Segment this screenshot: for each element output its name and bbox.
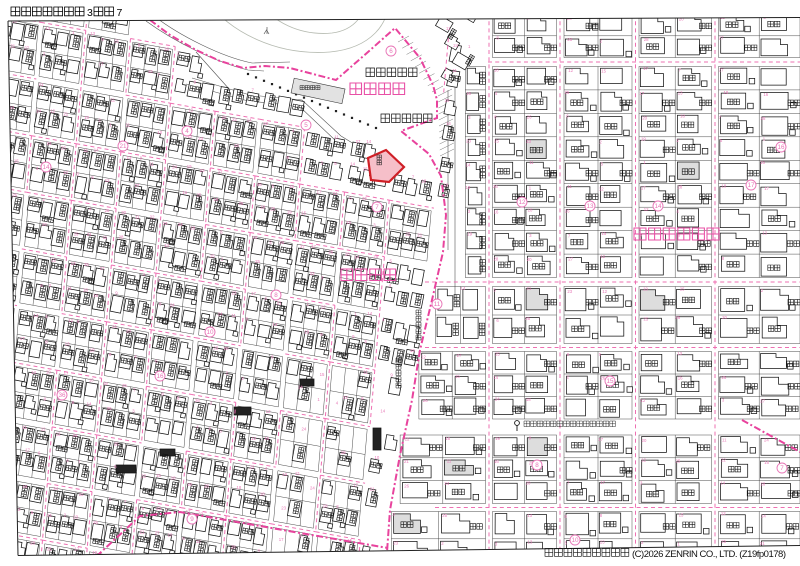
svg-text:27: 27 [356,139,361,144]
svg-text:17: 17 [747,182,755,189]
svg-text:18: 18 [465,185,470,190]
svg-text:21: 21 [47,513,52,518]
svg-text:6: 6 [389,48,393,55]
svg-text:25: 25 [197,192,202,197]
svg-text:25: 25 [84,262,89,267]
svg-text:21: 21 [39,82,44,87]
svg-text:26: 26 [362,196,367,201]
svg-text:17: 17 [764,186,769,191]
svg-text:14: 14 [654,203,662,210]
svg-text:26: 26 [525,316,530,321]
svg-text:12: 12 [105,178,110,183]
svg-text:27: 27 [760,398,765,403]
svg-text:25: 25 [494,139,499,144]
svg-text:27: 27 [568,256,573,261]
svg-text:11: 11 [22,425,27,430]
svg-text:18: 18 [237,485,242,490]
svg-text:3: 3 [87,7,93,19]
svg-text:14: 14 [380,409,385,414]
svg-text:11: 11 [363,370,368,375]
svg-text:16: 16 [494,459,499,464]
svg-text:15: 15 [455,374,460,379]
svg-text:23: 23 [250,465,255,470]
svg-text:13: 13 [71,261,76,266]
svg-text:24: 24 [302,426,307,431]
svg-text:15: 15 [210,254,215,259]
svg-text:28: 28 [231,545,236,550]
svg-text:26: 26 [722,375,727,380]
svg-text:18: 18 [494,68,499,73]
svg-text:28: 28 [119,235,124,240]
svg-text:10: 10 [84,115,89,120]
svg-text:17: 17 [311,244,316,249]
svg-text:28: 28 [644,37,649,42]
svg-text:17: 17 [598,437,603,442]
svg-text:27: 27 [155,531,160,536]
svg-text:17: 17 [25,448,30,453]
svg-text:15: 15 [606,378,614,385]
svg-text:24: 24 [53,486,58,491]
svg-text:15: 15 [14,159,19,164]
svg-text:15: 15 [679,513,684,518]
svg-text:7: 7 [375,204,379,211]
svg-text:23: 23 [600,539,605,544]
svg-text:25: 25 [676,459,681,464]
svg-text:24: 24 [310,485,315,490]
svg-text:13: 13 [127,155,132,160]
svg-text:19: 19 [187,164,192,169]
svg-text:28: 28 [105,208,110,213]
svg-text:27: 27 [719,67,724,72]
svg-text:8: 8 [274,292,278,299]
svg-text:11: 11 [722,437,727,442]
svg-text:24: 24 [178,222,183,227]
svg-text:11: 11 [149,161,154,166]
svg-text:4: 4 [185,128,189,135]
svg-text:21: 21 [277,301,282,306]
svg-text:22: 22 [141,474,146,479]
svg-text:17: 17 [317,189,322,194]
svg-text:26: 26 [114,441,119,446]
svg-text:16: 16 [93,293,98,298]
svg-text:25: 25 [122,383,127,388]
svg-text:22: 22 [222,115,227,120]
svg-text:28: 28 [761,116,766,121]
svg-text:18: 18 [680,113,685,118]
svg-text:21: 21 [114,39,119,44]
svg-text:19: 19 [410,348,415,353]
svg-text:13: 13 [677,351,682,356]
svg-text:26: 26 [164,47,169,52]
svg-text:16: 16 [466,91,471,96]
svg-text:21: 21 [760,541,765,546]
svg-text:21: 21 [370,486,375,491]
svg-text:21: 21 [119,143,127,150]
svg-text:14: 14 [354,254,359,259]
svg-text:11: 11 [434,301,441,308]
svg-text:14: 14 [273,322,278,327]
svg-text:14: 14 [164,243,169,248]
svg-text:14: 14 [94,148,99,153]
svg-text:15: 15 [320,372,325,377]
svg-text:14: 14 [466,163,471,168]
svg-text:24: 24 [495,397,500,402]
svg-text:24: 24 [444,481,449,486]
svg-text:13: 13 [45,26,50,31]
svg-text:10: 10 [528,208,533,213]
svg-text:13: 13 [188,107,193,112]
svg-text:23: 23 [281,506,286,511]
svg-text:18: 18 [171,475,176,480]
svg-text:10: 10 [46,370,51,375]
svg-text:21: 21 [10,44,15,49]
svg-text:11: 11 [447,458,452,463]
svg-text:19: 19 [214,197,219,202]
svg-text:16: 16 [760,160,765,165]
svg-text:20: 20 [121,210,126,215]
svg-text:15: 15 [264,436,269,441]
svg-text:19: 19 [287,210,292,215]
svg-text:21: 21 [140,530,145,535]
svg-text:19: 19 [724,90,729,95]
svg-text:15: 15 [602,231,607,236]
svg-text:14: 14 [234,143,239,148]
svg-text:12: 12 [68,318,73,323]
svg-text:25: 25 [680,286,685,291]
svg-text:23: 23 [200,168,205,173]
svg-text:25: 25 [495,351,500,356]
svg-text:18: 18 [260,204,265,209]
svg-text:12: 12 [568,68,573,73]
svg-text:24: 24 [47,141,52,146]
svg-text:24: 24 [170,303,175,308]
svg-text:21: 21 [63,111,68,116]
svg-text:19: 19 [304,329,309,334]
svg-text:11: 11 [126,122,131,127]
svg-text:13: 13 [586,203,594,210]
svg-text:24: 24 [253,235,258,240]
svg-text:21: 21 [47,546,52,551]
svg-text:23: 23 [213,345,218,350]
svg-text:7: 7 [117,7,123,19]
svg-text:16: 16 [156,373,164,380]
svg-text:12: 12 [600,254,605,259]
svg-text:12: 12 [644,207,649,212]
svg-text:14: 14 [87,402,92,407]
svg-text:7: 7 [780,465,784,472]
svg-text:26: 26 [257,182,262,187]
svg-text:16: 16 [83,287,88,292]
svg-text:13: 13 [527,513,532,518]
svg-text:16: 16 [182,190,187,195]
svg-text:12: 12 [196,539,201,544]
svg-text:23: 23 [163,221,168,226]
svg-text:28: 28 [761,481,766,486]
svg-text:12: 12 [56,432,61,437]
svg-text:8: 8 [535,462,539,469]
svg-text:28: 28 [126,329,131,334]
svg-text:14: 14 [761,513,766,518]
svg-text:11: 11 [452,68,457,73]
svg-text:25: 25 [239,201,244,206]
svg-text:23: 23 [198,136,203,141]
svg-text:24: 24 [453,43,458,48]
svg-text:28: 28 [30,541,35,546]
svg-text:14: 14 [36,108,41,113]
svg-text:25: 25 [721,539,726,544]
svg-text:24: 24 [73,433,78,438]
svg-text:27: 27 [300,244,305,249]
svg-text:26: 26 [204,484,209,489]
svg-text:21: 21 [112,324,117,329]
svg-text:15: 15 [301,210,306,215]
svg-text:21: 21 [67,286,72,291]
svg-text:14: 14 [42,164,50,171]
svg-text:23: 23 [567,37,572,42]
svg-text:11: 11 [41,427,46,432]
svg-text:17: 17 [251,291,256,296]
svg-text:12: 12 [602,289,607,294]
svg-text:24: 24 [218,311,223,316]
svg-text:22: 22 [405,232,410,237]
svg-text:22: 22 [150,215,155,220]
svg-text:18: 18 [526,397,531,402]
svg-text:23: 23 [466,139,471,144]
svg-text:18: 18 [190,226,195,231]
svg-text:19: 19 [282,472,287,477]
svg-text:10: 10 [375,455,380,460]
svg-text:12: 12 [641,398,646,403]
svg-text:18: 18 [323,504,328,509]
svg-text:19: 19 [90,347,95,352]
svg-text:13: 13 [678,91,683,96]
svg-text:19: 19 [467,232,472,237]
svg-text:28: 28 [263,121,268,126]
svg-text:11: 11 [84,148,89,153]
svg-text:25: 25 [363,167,368,172]
svg-text:11: 11 [567,184,572,189]
svg-text:21: 21 [295,471,300,476]
svg-text:18: 18 [444,183,449,188]
svg-text:22: 22 [232,117,237,122]
svg-text:18: 18 [345,251,350,256]
svg-text:28: 28 [678,184,683,189]
svg-text:27: 27 [135,183,140,188]
svg-text:14: 14 [461,286,466,291]
svg-text:26: 26 [195,398,200,403]
svg-text:18: 18 [721,183,726,188]
svg-text:14: 14 [367,311,372,316]
svg-text:13: 13 [65,342,70,347]
svg-text:17: 17 [353,482,358,487]
svg-text:19: 19 [341,450,346,455]
svg-text:20: 20 [526,481,531,486]
svg-text:16: 16 [445,436,450,441]
svg-text:23: 23 [526,139,531,144]
svg-text:25: 25 [442,513,447,518]
svg-text:36: 36 [58,392,66,399]
svg-text:(C)2026 ZENRIN CO., LTD. (Z19f: (C)2026 ZENRIN CO., LTD. (Z19fp0178) [632,549,786,560]
svg-text:23: 23 [310,271,315,276]
svg-text:19: 19 [641,137,646,142]
svg-text:23: 23 [567,289,572,294]
svg-text:16: 16 [764,460,769,465]
svg-text:24: 24 [172,165,177,170]
svg-text:13: 13 [762,231,767,236]
svg-text:14: 14 [493,375,498,380]
svg-text:20: 20 [445,98,450,103]
svg-text:20: 20 [642,438,647,443]
svg-text:11: 11 [103,235,108,240]
svg-text:11: 11 [529,160,534,165]
svg-text:26: 26 [423,398,428,403]
svg-text:17: 17 [639,91,644,96]
svg-text:26: 26 [493,184,498,189]
svg-text:15: 15 [346,220,351,225]
svg-text:13: 13 [63,170,68,175]
svg-text:21: 21 [87,232,92,237]
svg-text:17: 17 [279,537,284,542]
svg-text:12: 12 [421,354,426,359]
svg-text:16: 16 [763,92,768,97]
svg-text:20: 20 [224,346,229,351]
svg-text:12: 12 [641,458,646,463]
svg-text:25: 25 [270,206,275,211]
svg-text:14: 14 [34,313,39,318]
svg-text:26: 26 [279,240,284,245]
svg-text:23: 23 [61,146,66,151]
svg-text:20: 20 [722,315,727,320]
svg-text:20: 20 [642,116,647,121]
svg-text:25: 25 [255,259,260,264]
svg-text:14: 14 [720,480,725,485]
svg-text:26: 26 [328,249,333,254]
svg-text:14: 14 [298,385,303,390]
svg-text:22: 22 [79,492,84,497]
svg-text:11: 11 [334,135,339,140]
svg-text:12: 12 [518,199,526,206]
svg-text:9: 9 [190,516,194,523]
svg-text:12: 12 [266,409,271,414]
svg-text:21: 21 [333,191,338,196]
svg-text:10: 10 [157,130,162,135]
svg-text:21: 21 [417,233,422,238]
svg-text:17: 17 [643,66,648,71]
svg-text:12: 12 [599,187,604,192]
svg-text:26: 26 [565,208,570,213]
svg-text:11: 11 [135,215,140,220]
svg-text:14: 14 [247,118,252,123]
svg-text:10: 10 [289,184,294,189]
svg-text:18: 18 [260,491,265,496]
svg-text:14: 14 [366,139,371,144]
svg-text:20: 20 [527,257,532,262]
svg-text:14: 14 [31,370,36,375]
svg-text:19: 19 [495,436,500,441]
svg-text:12: 12 [721,511,726,516]
svg-text:16: 16 [23,484,28,489]
svg-text:13: 13 [148,69,153,74]
svg-text:25: 25 [565,90,570,95]
svg-text:13: 13 [528,540,533,545]
svg-text:11: 11 [446,26,451,31]
svg-text:10: 10 [206,329,214,336]
svg-text:25: 25 [93,520,98,525]
svg-text:26: 26 [527,115,532,120]
svg-text:17: 17 [20,336,25,341]
svg-text:26: 26 [12,192,17,197]
svg-text:27: 27 [719,35,724,40]
svg-text:19: 19 [74,231,79,236]
svg-text:17: 17 [99,61,104,66]
svg-text:14: 14 [350,161,355,166]
svg-text:13: 13 [90,31,95,36]
svg-text:21: 21 [527,286,532,291]
svg-text:16: 16 [777,144,785,151]
svg-text:19: 19 [643,287,648,292]
svg-text:15: 15 [601,69,606,74]
svg-text:12: 12 [405,437,410,442]
svg-text:23: 23 [232,290,237,295]
svg-text:22: 22 [721,458,726,463]
svg-text:22: 22 [343,395,348,400]
svg-text:28: 28 [494,257,499,262]
svg-text:19: 19 [187,482,192,487]
svg-text:10: 10 [42,222,47,227]
svg-text:18: 18 [422,178,427,183]
svg-text:11: 11 [231,313,236,318]
svg-text:27: 27 [100,266,105,271]
svg-text:17: 17 [641,185,646,190]
svg-text:11: 11 [111,97,116,102]
svg-text:24: 24 [764,438,769,443]
svg-text:10: 10 [168,532,173,537]
svg-text:22: 22 [51,258,56,263]
svg-text:25: 25 [373,254,378,259]
svg-text:10: 10 [89,378,94,383]
svg-text:26: 26 [675,315,680,320]
svg-text:26: 26 [107,406,112,411]
svg-text:19: 19 [103,381,108,386]
svg-text:15: 15 [156,473,161,478]
svg-text:17: 17 [74,547,79,552]
svg-text:23: 23 [156,506,161,511]
svg-text:23: 23 [73,515,78,520]
svg-text:25: 25 [644,317,649,322]
svg-text:16: 16 [678,376,683,381]
svg-text:22: 22 [321,305,326,310]
svg-text:5: 5 [304,122,308,129]
svg-text:12: 12 [50,108,55,113]
svg-text:26: 26 [404,483,409,488]
svg-text:17: 17 [600,480,605,485]
svg-text:27: 27 [24,46,29,51]
svg-text:12: 12 [251,436,256,441]
svg-text:27: 27 [457,353,462,358]
svg-text:16: 16 [494,209,499,214]
svg-text:23: 23 [393,540,398,545]
svg-text:10: 10 [571,537,579,544]
svg-text:21: 21 [404,459,409,464]
svg-text:14: 14 [446,121,451,126]
